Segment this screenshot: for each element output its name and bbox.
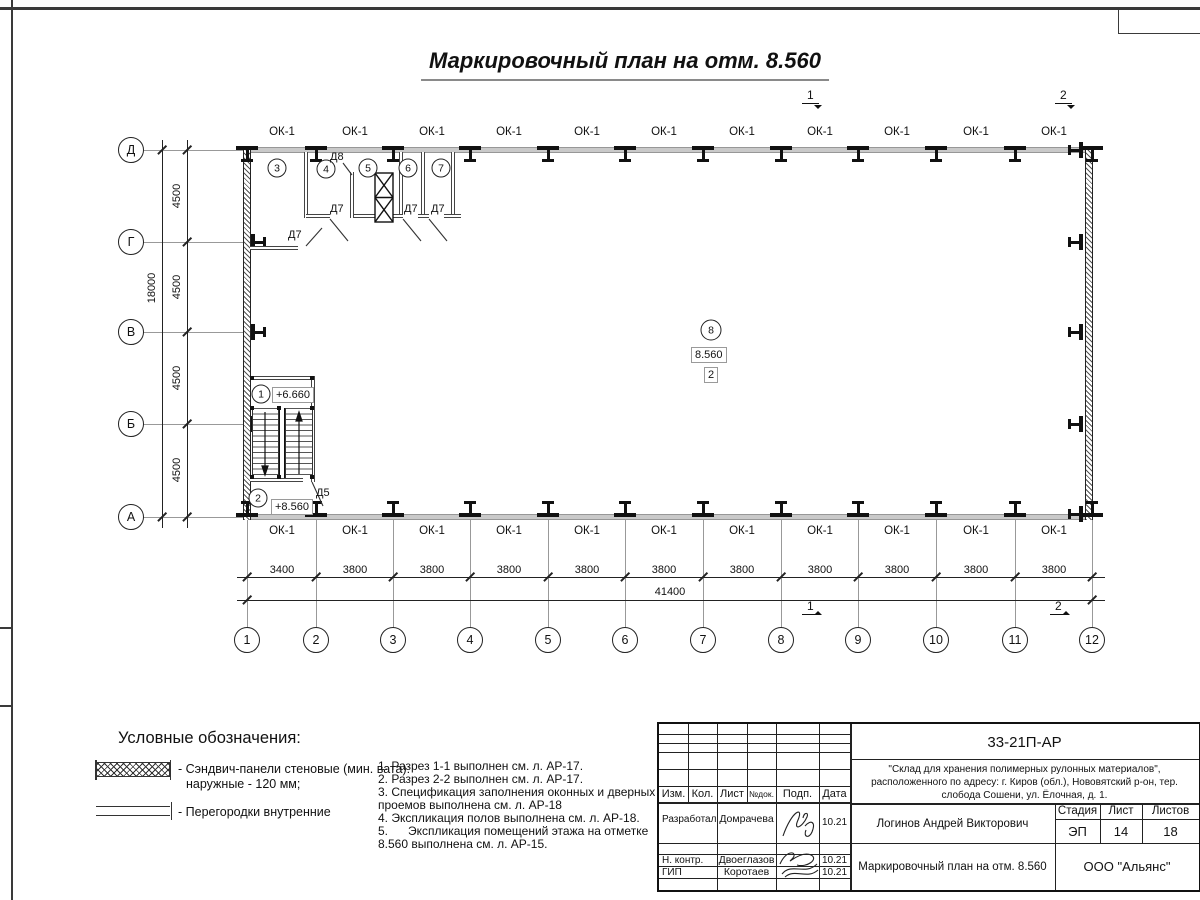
column-icon (925, 501, 947, 517)
legend-item-text: наружные - 120 мм; (186, 777, 300, 791)
door-leaf (306, 228, 322, 246)
dim-label: 4500 (171, 366, 183, 390)
column-icon (382, 501, 404, 517)
partition (304, 152, 308, 218)
stamp-header-kol: Кол. (688, 786, 717, 802)
window-label: ОК-1 (729, 525, 755, 537)
frame-left-line (11, 0, 13, 900)
partition (306, 214, 330, 218)
door-leaf (330, 219, 348, 241)
window-label: ОК-1 (419, 525, 445, 537)
signature (777, 846, 821, 882)
axis-circle: А (118, 504, 144, 530)
window-label: ОК-1 (496, 126, 522, 138)
dim-total-label: 18000 (146, 273, 158, 304)
stair-post (310, 376, 314, 380)
axis-circle: 5 (535, 627, 561, 653)
section-number: 1 (807, 88, 814, 102)
column-icon (1081, 501, 1103, 517)
room-number: 8 (701, 320, 722, 341)
legend-title: Условные обозначения: (118, 729, 301, 748)
stamp-stage-label: Стадия (1055, 803, 1100, 819)
stamp-header-ndok: №док. (747, 786, 776, 802)
stamp-role: Н. контр. (660, 854, 718, 866)
window-label: ОК-1 (574, 126, 600, 138)
room-number: 7 (432, 159, 451, 178)
stamp-chief-name: Логинов Андрей Викторович (850, 805, 1055, 843)
column-icon (1068, 416, 1083, 432)
axis-circle: 3 (380, 627, 406, 653)
column-icon (1004, 501, 1026, 517)
window-label: ОК-1 (574, 525, 600, 537)
window-label: ОК-1 (729, 126, 755, 138)
stamp-role: ГИП (660, 866, 718, 878)
stamp-sheet-label: Лист (1100, 803, 1142, 819)
extension-line (143, 424, 243, 425)
stamp-sheet-value: 14 (1100, 819, 1142, 843)
axis-circle: 7 (690, 627, 716, 653)
dim-label: 3800 (420, 564, 444, 576)
symbol-cap (171, 802, 173, 820)
dimension-line (237, 577, 1105, 578)
dim-label: 3800 (343, 564, 367, 576)
window-label: ОК-1 (651, 525, 677, 537)
dim-label: 3800 (1042, 564, 1066, 576)
column-icon (459, 146, 481, 162)
stair-wall (250, 376, 315, 380)
stamp-date: 10.21 (819, 854, 850, 866)
dim-label: 3400 (270, 564, 294, 576)
column-icon (1068, 142, 1083, 158)
window-label: ОК-1 (269, 126, 295, 138)
dim-label: 3800 (575, 564, 599, 576)
page-title: Маркировочный план на отм. 8.560 (421, 48, 829, 81)
symbol-cap (95, 760, 97, 780)
room-number: 3 (268, 159, 287, 178)
stair-post (250, 376, 254, 380)
room-number: 6 (399, 159, 418, 178)
partition (418, 214, 429, 218)
window-label: ОК-1 (342, 525, 368, 537)
column-icon (770, 146, 792, 162)
wall-right (1085, 147, 1093, 520)
window-label: ОК-1 (807, 126, 833, 138)
extension-line (143, 517, 243, 518)
stamp-header-izm: Изм. (659, 786, 688, 802)
window-label: ОК-1 (963, 126, 989, 138)
door-label: Д7 (330, 203, 344, 215)
door-label: Д8 (330, 151, 344, 163)
partition (444, 214, 461, 218)
wall-bottom (243, 514, 1093, 520)
axis-circle: Г (118, 229, 144, 255)
partition (451, 152, 455, 218)
door-label: Д5 (316, 487, 330, 499)
legend-item-text: - Перегородки внутренние (178, 805, 331, 819)
extension-line (143, 332, 243, 333)
title-block: Изм. Кол. Лист №док. Подп. Дата Разработ… (657, 722, 1200, 892)
stamp-name: Домрачева (717, 812, 776, 826)
axis-circle: 2 (303, 627, 329, 653)
column-icon (692, 501, 714, 517)
door-label: Д7 (431, 203, 445, 215)
stamp-date: 10.21 (819, 815, 850, 829)
stamp-project-line: расположенного по адресу: г. Киров (обл.… (850, 776, 1199, 789)
stamp-role: Разработал (660, 812, 718, 826)
stamp-sheets-value: 18 (1142, 819, 1199, 843)
frame-tick (0, 627, 11, 629)
door-leaf (403, 219, 421, 241)
column-icon (692, 146, 714, 162)
window-label: ОК-1 (1041, 126, 1067, 138)
column-icon (1004, 146, 1026, 162)
axis-circle: В (118, 319, 144, 345)
door-leaf (429, 219, 447, 241)
axis-circle: 4 (457, 627, 483, 653)
column-icon (847, 501, 869, 517)
elevation-mark: +6.660 (272, 387, 314, 403)
room-number: 1 (252, 385, 271, 404)
window-label: ОК-1 (1041, 525, 1067, 537)
elevation-mark: 8.560 (691, 347, 727, 363)
stamp-sheet-title: Маркировочный план на отм. 8.560 (850, 843, 1055, 890)
window-label: ОК-1 (963, 525, 989, 537)
legend-item-text: - Сэндвич-панели стеновые (мин. вата): (178, 762, 410, 776)
section-mark: 2 (1055, 88, 1072, 104)
dim-label: 3800 (885, 564, 909, 576)
axis-circle: 8 (768, 627, 794, 653)
partition (354, 214, 375, 218)
dim-label: 3800 (964, 564, 988, 576)
extension-line (143, 150, 243, 151)
stamp-header-podp: Подп. (776, 786, 819, 802)
dim-label: 4500 (171, 275, 183, 299)
dim-label: 3800 (808, 564, 832, 576)
window-label: ОК-1 (884, 126, 910, 138)
dim-label: 3800 (652, 564, 676, 576)
stair-post (250, 406, 254, 410)
column-icon (770, 501, 792, 517)
window-label: ОК-1 (807, 525, 833, 537)
dimension-line (187, 140, 188, 528)
column-icon (236, 146, 258, 162)
frame-corner-box (1118, 8, 1200, 34)
axis-circle: 6 (612, 627, 638, 653)
zone-mark: 2 (704, 367, 718, 383)
window-label: ОК-1 (269, 525, 295, 537)
window-label: ОК-1 (496, 525, 522, 537)
door-label: Д7 (288, 229, 302, 241)
dim-label: 4500 (171, 458, 183, 482)
dim-total-label: 41400 (655, 586, 686, 598)
section-mark: 1 (802, 88, 819, 104)
shaft (375, 173, 393, 222)
drawing-sheet: { "title": "Маркировочный план на отм. 8… (0, 0, 1200, 900)
axis-circle: 9 (845, 627, 871, 653)
sandwich-panel-symbol (96, 762, 170, 777)
signature (778, 804, 819, 844)
door-label: Д7 (404, 203, 418, 215)
stair-post (310, 475, 314, 479)
partition (350, 172, 354, 218)
stamp-name: Коротаев (717, 866, 776, 878)
partition (393, 214, 403, 218)
dimension-line (162, 140, 163, 528)
stamp-header-data: Дата (819, 786, 850, 802)
partition (250, 246, 298, 250)
stair-flight (285, 408, 313, 478)
partition-symbol (96, 806, 170, 816)
column-icon (847, 146, 869, 162)
stamp-company: ООО "Альянс" (1055, 843, 1199, 890)
axis-circle: 12 (1079, 627, 1105, 653)
axis-circle: 10 (923, 627, 949, 653)
stamp-name: Двоеглазов (717, 854, 776, 866)
section-number: 2 (1060, 88, 1067, 102)
stair-post (277, 406, 281, 410)
column-icon (537, 146, 559, 162)
column-icon (1068, 324, 1083, 340)
symbol-cap (170, 760, 172, 780)
column-icon (1081, 146, 1103, 162)
dim-label: 3800 (497, 564, 521, 576)
axis-circle: 11 (1002, 627, 1028, 653)
note-line: 8.560 выполнена см. л. АР-15. (378, 838, 547, 851)
dim-label: 4500 (171, 184, 183, 208)
column-icon (1068, 506, 1083, 522)
stamp-doc-number: 33-21П-АР (850, 730, 1199, 754)
stamp-date: 10.21 (819, 866, 850, 878)
dim-label: 3800 (730, 564, 754, 576)
column-icon (459, 501, 481, 517)
stamp-project-line: "Склад для хранения полимерных рулонных … (850, 763, 1199, 776)
axis-circle: Б (118, 411, 144, 437)
window-label: ОК-1 (884, 525, 910, 537)
column-icon (614, 146, 636, 162)
room-number: 5 (359, 159, 378, 178)
stamp-sheets-label: Листов (1142, 803, 1199, 819)
wall-top (243, 147, 1093, 153)
dimension-line (237, 600, 1105, 601)
column-icon (251, 324, 266, 340)
stamp-stage-value: ЭП (1055, 819, 1100, 843)
frame-top-line (0, 7, 1200, 10)
column-icon (1068, 234, 1083, 250)
window-label: ОК-1 (419, 126, 445, 138)
stamp-header-list: Лист (717, 786, 747, 802)
frame-tick (0, 705, 11, 707)
window-label: ОК-1 (651, 126, 677, 138)
column-icon (925, 146, 947, 162)
window-label: ОК-1 (342, 126, 368, 138)
stair-flight (252, 408, 279, 478)
column-icon (537, 501, 559, 517)
section-mark: 1 (802, 599, 819, 615)
wall-left (243, 147, 251, 520)
axis-circle: Д (118, 137, 144, 163)
section-mark: 2 (1050, 599, 1067, 615)
axis-circle: 1 (234, 627, 260, 653)
room-number: 2 (249, 489, 268, 508)
extension-line (143, 242, 243, 243)
partition (421, 152, 425, 218)
stair-post (250, 475, 254, 479)
stair-post (277, 475, 281, 479)
stair-post (310, 406, 314, 410)
elevation-mark: +8.560 (271, 499, 313, 515)
column-icon (614, 501, 636, 517)
stamp-project-line: слобода Сошени, ул. Ёлочная, д. 1. (850, 789, 1199, 802)
